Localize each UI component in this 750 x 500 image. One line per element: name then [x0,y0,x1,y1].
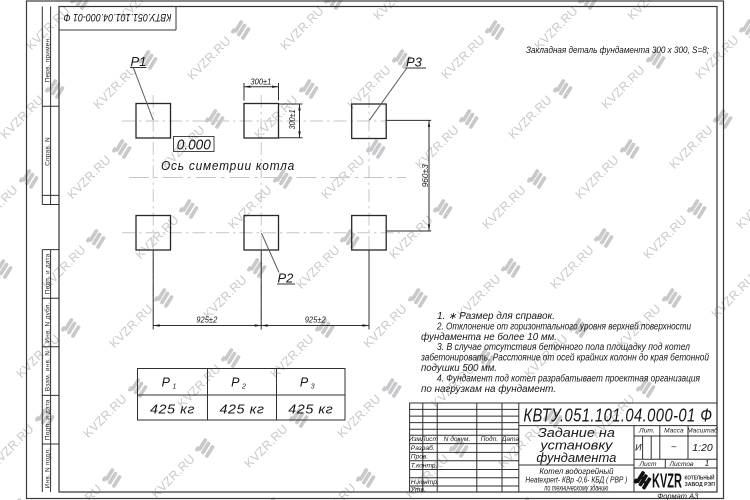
svg-text:KVZR.RU: KVZR.RU [625,0,674,23]
svg-text:Н.контр.: Н.контр. [411,479,439,486]
svg-text:Масштаб: Масштаб [687,427,718,435]
svg-text:KVZR.RU: KVZR.RU [149,452,198,500]
svg-text:0.000: 0.000 [177,137,212,154]
svg-text:KVZR.RU: KVZR.RU [310,481,359,500]
svg-text:по нагрузкам на фундамент.: по нагрузкам на фундамент. [421,384,556,395]
svg-text:Ось симетрии котла: Ось симетрии котла [161,159,295,173]
svg-text:KVZR.RU: KVZR.RU [278,4,327,53]
svg-text:Инв. N подл.: Инв. N подл. [44,448,51,489]
svg-text:925±2: 925±2 [305,316,327,325]
svg-text:фундамента: фундамента [536,450,616,465]
svg-text:KVZR.RU: KVZR.RU [65,153,114,202]
svg-text:KVZR.RU: KVZR.RU [0,183,21,232]
svg-text:Р2: Р2 [278,271,295,286]
svg-text:по техническому зданию: по техническому зданию [544,484,608,493]
svg-text:Лит.: Лит. [638,428,655,435]
svg-text:KVZR.RU: KVZR.RU [480,183,529,232]
svg-text:забетонировать. Расстояние от: забетонировать. Расстояние от осей крайн… [420,353,709,364]
svg-text:KVZR.RU: KVZR.RU [0,93,47,142]
svg-text:KVZR.RU: KVZR.RU [185,34,234,83]
svg-text:KVZR.RU: KVZR.RU [107,302,156,351]
svg-text:KVZR.RU: KVZR.RU [641,213,690,262]
svg-text:KVZR.RU: KVZR.RU [667,123,716,172]
svg-text:KVZR.RU: KVZR.RU [548,243,597,292]
svg-text:Подп.: Подп. [481,435,499,443]
svg-text:KVZR: KVZR [652,470,682,493]
svg-text:KVZR.RU: KVZR.RU [226,183,275,232]
svg-text:425 кг: 425 кг [288,401,333,416]
svg-text:KVZR.RU: KVZR.RU [371,0,420,23]
svg-text:Р2: Р2 [231,376,246,391]
svg-text:Дата: Дата [501,436,520,443]
svg-text:KVZR.RU: KVZR.RU [56,482,105,500]
svg-text:Р1: Р1 [131,54,147,69]
svg-text:4. Фундамент под котел разраба: 4. Фундамент под котел разрабатывает про… [437,373,700,384]
svg-text:425 кг: 425 кг [150,401,195,416]
svg-text:KVZR.RU: KVZR.RU [14,332,63,381]
svg-text:KVZR.RU: KVZR.RU [81,392,130,441]
svg-text:300±1: 300±1 [250,78,271,87]
svg-text:Закладная деталь фундамента 3: Закладная деталь фундамента 300 х 300, S… [526,45,709,56]
svg-text:KVZR.RU: KVZR.RU [387,213,436,262]
svg-text:подушки 500 мм.: подушки 500 мм. [421,363,497,374]
svg-text:N докум.: N докум. [444,435,471,443]
svg-text:Котел водогрейный: Котел водогрейный [539,467,614,476]
svg-text:–: – [671,441,676,451]
svg-text:Масса: Масса [664,428,684,435]
svg-text:300±1: 300±1 [288,109,297,129]
svg-text:Р3: Р3 [406,55,423,70]
svg-text:KVZR.RU: KVZR.RU [294,243,343,292]
svg-text:Лист: Лист [420,436,438,443]
svg-text:Взам. инв. N: Взам. инв. N [44,351,51,391]
svg-text:KVZR.RU: KVZR.RU [599,63,648,112]
svg-text:КВТУ.051.101.04.000-01 Ф: КВТУ.051.101.04.000-01 Ф [63,11,171,23]
svg-text:1. ∗ Размер для справок.: 1. ∗ Размер для справок. [437,311,555,322]
svg-text:Т.контр.: Т.контр. [411,462,438,469]
svg-text:925±2: 925±2 [196,316,218,325]
svg-text:Р1: Р1 [162,376,177,391]
svg-text:KVZR.RU: KVZR.RU [133,213,182,262]
svg-text:KVZR.RU: KVZR.RU [439,33,488,82]
svg-text:KVZR.RU: KVZR.RU [335,392,384,441]
svg-text:KVZR.RU: KVZR.RU [573,153,622,202]
svg-text:2. Отклонение от горизонтально: 2. Отклонение от горизонтального уровня … [436,321,691,332]
svg-text:1:20: 1:20 [692,442,713,454]
svg-text:KVZR.RU: KVZR.RU [734,183,750,232]
svg-text:Лист: Лист [639,461,657,468]
svg-text:Подп. и дата: Подп. и дата [44,399,51,440]
svg-text:KVZR.RU: KVZR.RU [242,422,291,471]
svg-text:Подп. и дата: Подп. и дата [44,253,51,294]
svg-text:KVZR.RU: KVZR.RU [201,273,250,322]
svg-text:KVZR.RU: KVZR.RU [0,422,37,471]
svg-text:960±3: 960±3 [421,164,430,188]
svg-text:Формат А3: Формат А3 [657,492,699,500]
svg-text:KVZR.RU: KVZR.RU [361,302,410,351]
svg-text:Листов: Листов [668,461,694,468]
svg-text:Справ. N: Справ. N [44,137,51,166]
svg-text:фундамента не более 10 мм.: фундамента не более 10 мм. [421,332,557,343]
svg-text:425 кг: 425 кг [220,401,265,416]
svg-text:KVZR.RU: KVZR.RU [506,93,555,142]
svg-text:3. В случае отсутствия бетонно: 3. В случае отсутствия бетонного пола пл… [437,342,690,353]
svg-text:Р3: Р3 [300,376,315,391]
svg-text:Утв.: Утв. [410,486,426,493]
svg-text:ЗАВОД РЭП: ЗАВОД РЭП [685,482,716,488]
svg-text:KVZR.RU: KVZR.RU [91,63,140,112]
svg-text:И: И [635,443,642,453]
svg-text:1: 1 [705,459,709,468]
svg-text:KVZR.RU: KVZR.RU [413,123,462,172]
svg-text:KVZR.RU: KVZR.RU [268,332,317,381]
svg-text:КВТУ.051.101.04.000-01 Ф: КВТУ.051.101.04.000-01 Ф [523,405,712,425]
svg-text:Разраб.: Разраб. [411,444,435,452]
svg-text:Перв. примен.: Перв. примен. [44,37,51,83]
svg-text:Пров.: Пров. [411,454,429,461]
svg-text:Инв. N дубл.: Инв. N дубл. [43,302,51,342]
svg-text:КОТЕЛЬНЫЙ: КОТЕЛЬНЫЙ [685,473,715,481]
svg-text:KVZR.RU: KVZR.RU [709,272,750,321]
